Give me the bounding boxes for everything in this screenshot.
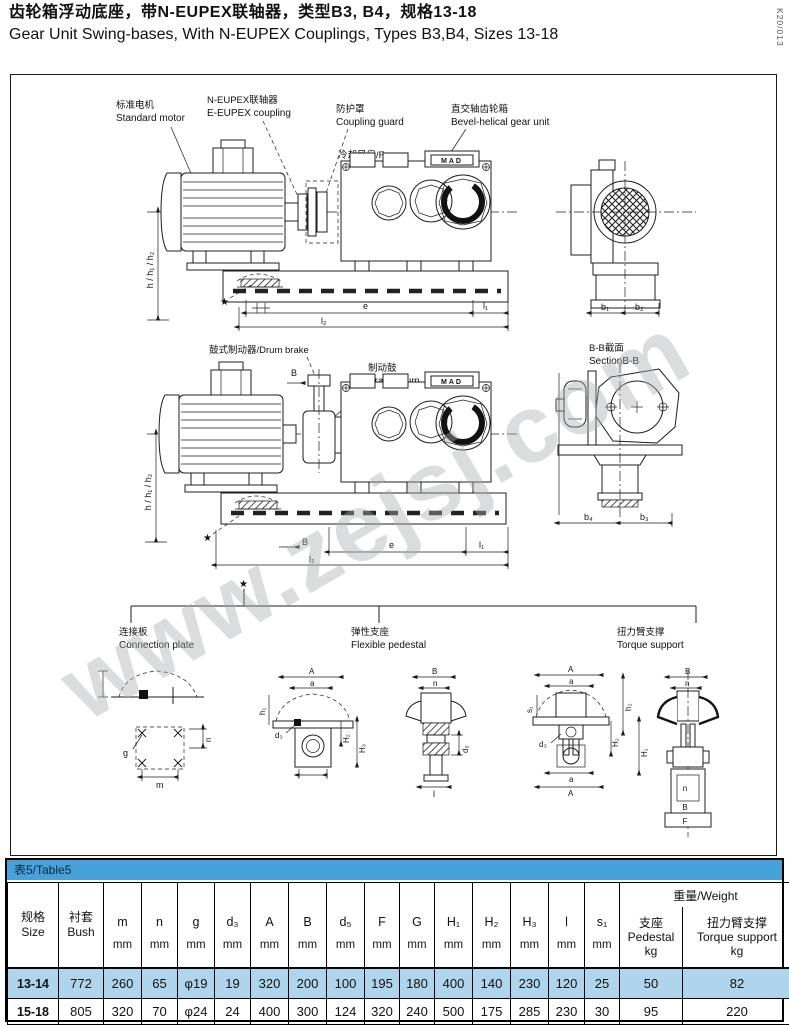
dim-fps-d5: d₅ (461, 745, 470, 753)
dim-fp-H3: H₃ (358, 744, 367, 753)
cell-value: 230 (549, 999, 585, 1025)
dim-ts-d3: d₃ (539, 740, 547, 749)
dim-e-1: e (363, 301, 368, 311)
swing-base-1 (223, 271, 508, 302)
spec-table: 规格Size 衬套Bush mmm nmm gmm d₃mm Amm Bmm d… (7, 882, 789, 1025)
cell-value: 400 (251, 999, 289, 1025)
dim-ts-h2: h₂ (624, 703, 633, 711)
swing-base-2 (221, 493, 506, 524)
label-drum-brake: 鼓式制动器/Drum brake (209, 344, 309, 356)
cell-value: 285 (511, 999, 549, 1025)
cell-value: 300 (289, 999, 327, 1025)
drawings-svg: MAD (11, 75, 778, 853)
cell-value: 24 (215, 999, 251, 1025)
dim-l1-2: l₁ (479, 540, 484, 550)
star-mark-3: ★ (239, 579, 248, 590)
motor-side-view (161, 140, 298, 270)
drawing2: 鼓式制动器/Drum brake B 制动鼓 Brake drum ★ h / … (143, 342, 682, 569)
motor-side-view-2 (159, 362, 296, 492)
dim-b4: b₄ (584, 512, 593, 522)
dim-l1-1: l₁ (483, 301, 488, 311)
cell-value: 175 (473, 999, 511, 1025)
cell-value: 400 (435, 968, 473, 999)
label-guard-en: Coupling guard (336, 117, 404, 128)
page-header: 齿轮箱浮动底座，带N-EUPEX联轴器，类型B3, B4，规格13-18 Gea… (9, 2, 749, 46)
dim-tss-B2: B (682, 803, 687, 812)
star-mark-2: ★ (203, 533, 212, 544)
dim-fp-d3: d₃ (275, 731, 283, 740)
cell-value: 65 (142, 968, 178, 999)
dim-ts-s1: s₁ (525, 706, 534, 713)
dim-fp-a: a (310, 679, 315, 688)
table-row: 13-14 77226065φ1919320200100195180400140… (8, 968, 789, 999)
col-header-bush: 衬套Bush (59, 883, 104, 969)
dim-e-2: e (389, 540, 394, 550)
cell-bush: 772 (59, 968, 104, 999)
label-flexible-pedestal-en: Flexible pedestal (351, 640, 426, 651)
dim-fps-B: B (432, 667, 437, 676)
cell-value: 195 (365, 968, 400, 999)
dim-fp-h1: h₁ (258, 708, 267, 715)
cell-torque: 220 (683, 999, 789, 1025)
cell-value: 320 (104, 999, 142, 1025)
dim-ts-a2: a (569, 775, 574, 784)
cell-value: 260 (104, 968, 142, 999)
dim-b3: b₃ (640, 512, 649, 522)
cell-value: 124 (327, 999, 365, 1025)
spec-table-head: 规格Size 衬套Bush mmm nmm gmm d₃mm Amm Bmm d… (8, 883, 789, 969)
dim-tss-n: n (685, 679, 689, 688)
cell-value: 30 (585, 999, 620, 1025)
cell-size: 15-18 (8, 999, 59, 1025)
cell-value: 230 (511, 968, 549, 999)
table-caption: 表5/Table5 (7, 860, 782, 882)
options-branch: ★ 连接板 Connection plate 弹性支座 Flexible ped… (119, 579, 696, 651)
label-connection-plate-en: Connection plate (119, 640, 194, 651)
dim-plate-m: m (156, 780, 164, 790)
dim-ts-H2: H₂ (611, 738, 620, 747)
dim-ts-A2: A (568, 789, 574, 798)
label-torque-support-en: Torque support (617, 640, 684, 651)
dim-h-2: h / h₁ / h₂ (143, 473, 153, 510)
cell-value: 200 (289, 968, 327, 999)
gearbox-side-view (341, 151, 491, 278)
col-header-6: d₅mm (327, 883, 365, 969)
label-torque-support-zh: 扭力臂支撑 (617, 626, 665, 638)
cell-size: 13-14 (8, 968, 59, 999)
col-header-2: gmm (178, 883, 215, 969)
cell-value: 140 (473, 968, 511, 999)
col-header-3: d₃mm (215, 883, 251, 969)
drawing1: 标准电机 Standard motor N-EUPEX联轴器 E-EUPEX c… (116, 94, 696, 331)
spec-table-body: 13-14 77226065φ1919320200100195180400140… (8, 968, 789, 1025)
cell-value: 19 (215, 968, 251, 999)
col-header-11: H₃mm (511, 883, 549, 969)
dim-ts-a: a (569, 677, 574, 686)
dim-ts-H1: H₁ (640, 748, 649, 757)
gearbox-side-view-2 (341, 372, 491, 499)
detail-flexible-pedestal-front: A a h₁ d₃ H₂ H₃ (258, 667, 367, 779)
cell-value: 180 (400, 968, 435, 999)
table-row: 15-18 80532070φ2424400300124320240500175… (8, 999, 789, 1025)
cell-pedestal: 95 (620, 999, 683, 1025)
col-header-pedestal: 支座Pedestalkg (620, 907, 683, 968)
cell-value: φ19 (178, 968, 215, 999)
doc-code: K20/013 (775, 8, 785, 47)
label-section-bb-zh: B-B截面 (589, 342, 624, 354)
label-gear-unit-en: Bevel-helical gear unit (451, 117, 550, 128)
cell-pedestal: 50 (620, 968, 683, 999)
spec-table-wrap: 表5/Table5 规格Size 衬套Bush mmm nmm gmm d₃mm… (5, 858, 784, 1022)
cell-value: 500 (435, 999, 473, 1025)
dim-B-top: B (291, 368, 297, 378)
drawing-frame: MAD (10, 74, 777, 856)
page-title-en: Gear Unit Swing-bases, With N-EUPEX Coup… (9, 24, 749, 46)
dim-l2-2: l₂ (309, 554, 315, 564)
col-header-9: H₁mm (435, 883, 473, 969)
label-brake-drum-zh: 制动鼓 (368, 362, 397, 374)
page-title-zh: 齿轮箱浮动底座，带N-EUPEX联轴器，类型B3, B4，规格13-18 (9, 2, 749, 24)
cell-value: 25 (585, 968, 620, 999)
dim-h-1: h / h₁ / h₂ (145, 251, 155, 288)
cell-value: 320 (251, 968, 289, 999)
col-header-12: lmm (549, 883, 585, 969)
cell-value: 320 (365, 999, 400, 1025)
catalog-page: { "header": { "title_zh": "齿轮箱浮动底座，带N-EU… (0, 0, 789, 1022)
cell-value: 70 (142, 999, 178, 1025)
col-header-torque: 扭力臂支撑Torque supportkg (683, 907, 789, 968)
dim-l2-1: l₂ (321, 316, 327, 326)
label-guard-zh: 防护罩 (336, 103, 365, 115)
label-connection-plate-zh: 连接板 (119, 626, 148, 638)
label-standard-motor-en: Standard motor (116, 113, 186, 124)
end-view-1 (571, 160, 660, 308)
detail-torque-support-side: B n n B F (658, 667, 718, 837)
col-header-5: Bmm (289, 883, 327, 969)
col-header-size: 规格Size (8, 883, 59, 969)
label-gear-unit-zh: 直交轴齿轮箱 (451, 103, 508, 115)
star-mark-1: ★ (220, 297, 229, 308)
detail-connection-plate: g n m (98, 671, 213, 790)
dim-B-bot: B (302, 537, 308, 547)
dim-ts-A: A (568, 665, 574, 674)
dim-b2: b₂ (635, 302, 644, 312)
dim-fp-H2: H₂ (342, 734, 351, 743)
dim-tss-n2: n (683, 784, 687, 793)
cell-value: 100 (327, 968, 365, 999)
dim-b1: b₁ (601, 302, 609, 312)
detail-flexible-pedestal-side: B n d₅ l (406, 667, 470, 799)
dim-fps-l: l (433, 789, 435, 799)
cell-value: 240 (400, 999, 435, 1025)
dim-fps-n: n (433, 679, 437, 688)
cell-bush: 805 (59, 999, 104, 1025)
col-header-1: nmm (142, 883, 178, 969)
col-header-7: Fmm (365, 883, 400, 969)
col-header-weight: 重量/Weight (620, 883, 789, 908)
cell-value: φ24 (178, 999, 215, 1025)
col-header-4: Amm (251, 883, 289, 969)
detail-torque-support-front: A a s₁ h₂ d₃ H₂ H₁ a A (525, 665, 649, 798)
dim-plate-g: g (123, 748, 128, 758)
dim-fp-A: A (309, 667, 315, 676)
col-header-13: s₁mm (585, 883, 620, 969)
label-coupling-zh: N-EUPEX联轴器 (207, 94, 278, 106)
dim-tss-F: F (683, 817, 688, 826)
dim-plate-n: n (204, 738, 213, 742)
col-header-8: Gmm (400, 883, 435, 969)
label-standard-motor-zh: 标准电机 (116, 99, 155, 111)
label-coupling-en: E-EUPEX coupling (207, 108, 291, 119)
cell-torque: 82 (683, 968, 789, 999)
cell-value: 120 (549, 968, 585, 999)
col-header-10: H₂mm (473, 883, 511, 969)
label-section-bb-en: SectionB-B (589, 356, 639, 367)
col-header-0: mmm (104, 883, 142, 969)
section-bb-view: b₄ b₃ (556, 363, 682, 527)
label-flexible-pedestal-zh: 弹性支座 (351, 626, 390, 638)
